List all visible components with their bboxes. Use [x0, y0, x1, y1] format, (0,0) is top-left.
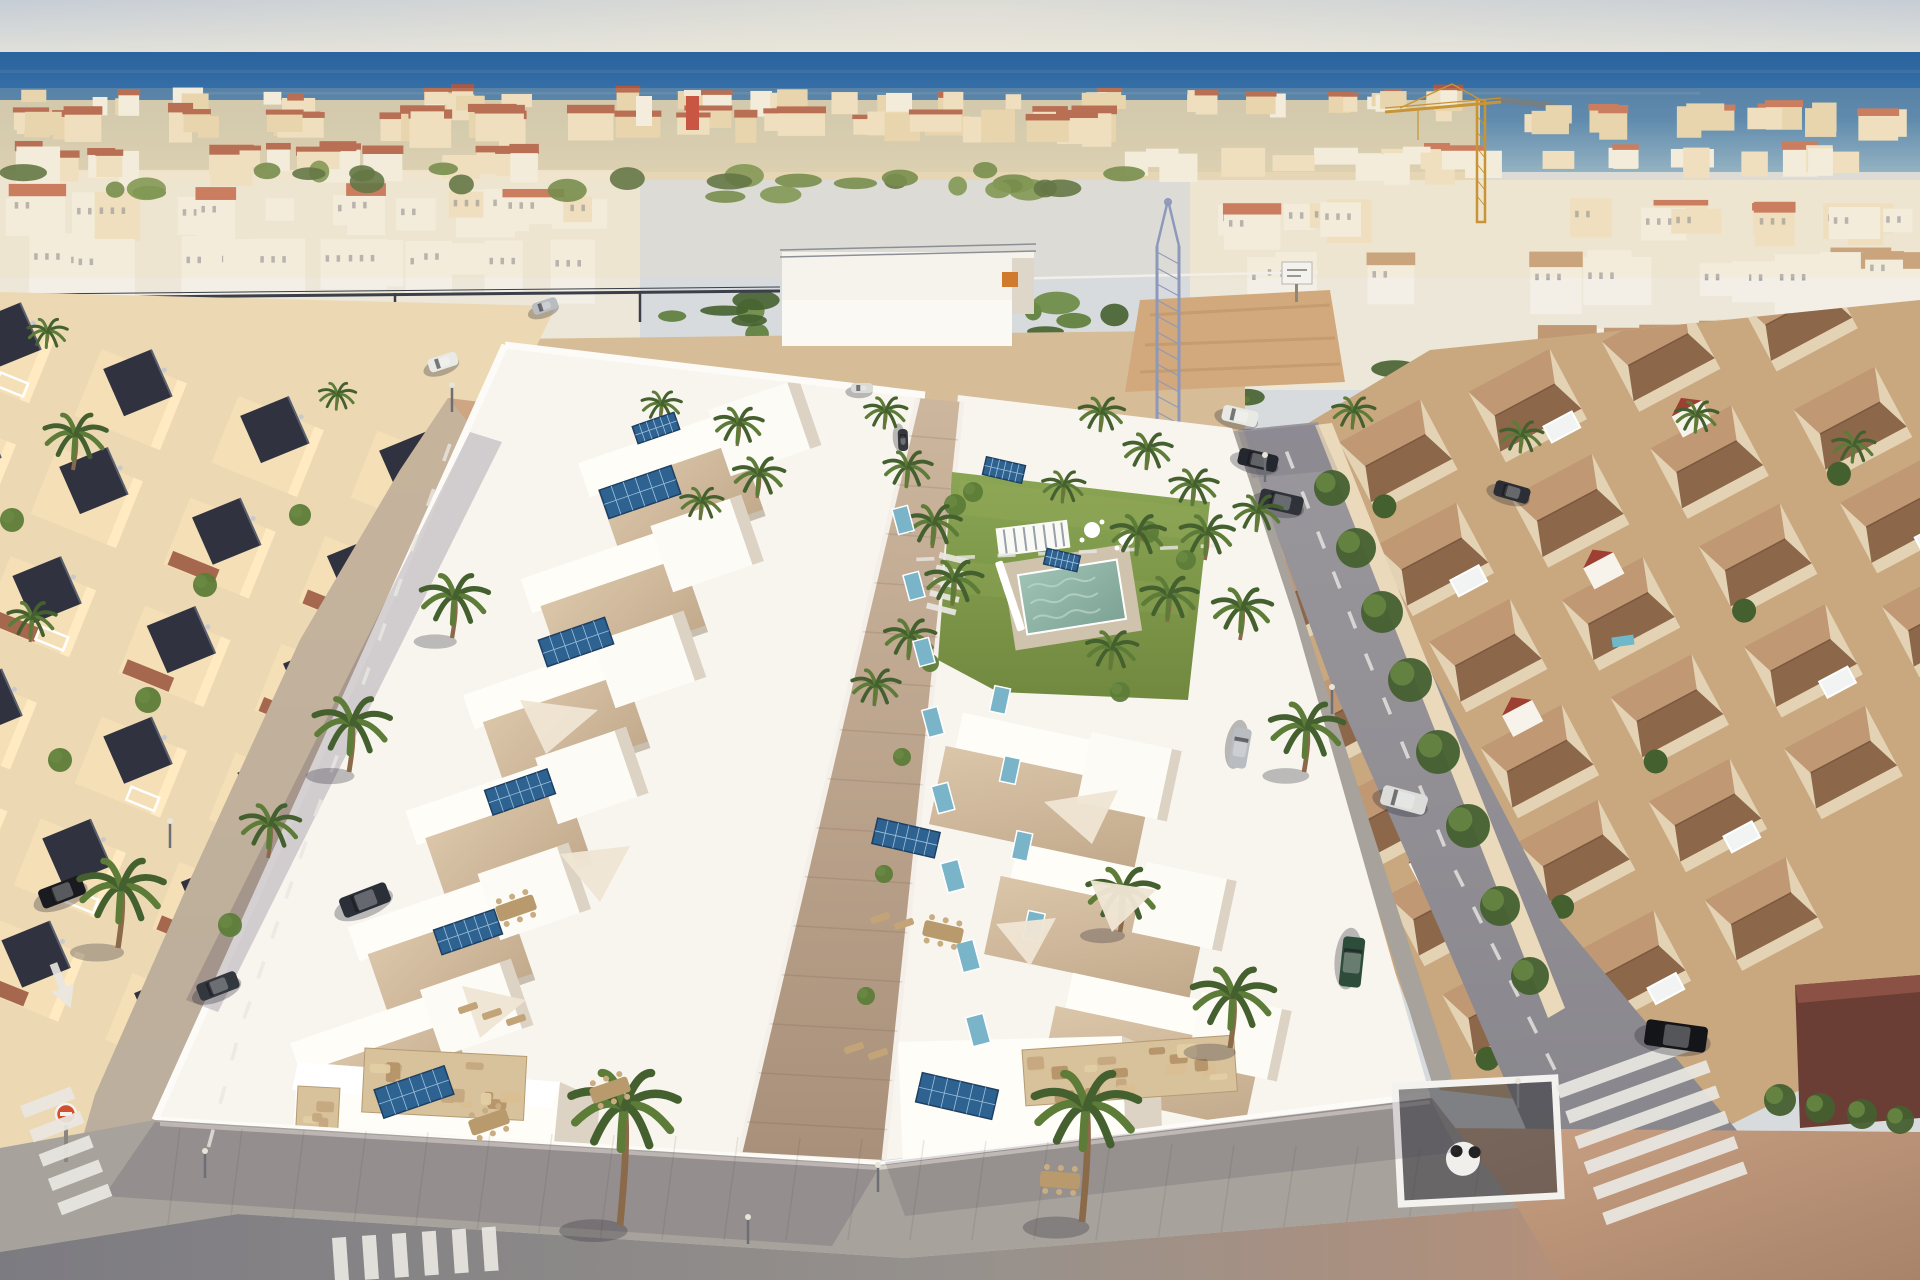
- tree-highlight: [1482, 889, 1504, 911]
- tree-highlight: [1177, 552, 1188, 563]
- orange-cabin: [1002, 272, 1018, 287]
- tree-highlight: [1513, 960, 1534, 981]
- tree-highlight: [1, 510, 14, 523]
- stone: [312, 1113, 323, 1122]
- tree-highlight: [1390, 661, 1414, 685]
- windshield: [856, 385, 860, 391]
- palm-frond: [1062, 485, 1064, 502]
- palm-frond: [621, 1107, 625, 1149]
- palm-frond: [73, 435, 75, 459]
- tree-highlight: [876, 866, 886, 876]
- greenery: [1100, 304, 1128, 327]
- lamp-head: [202, 1148, 208, 1154]
- lamp-head: [875, 1162, 881, 1168]
- lamp-head: [167, 818, 173, 824]
- tree-highlight: [1849, 1101, 1866, 1118]
- table-top: [1039, 1171, 1080, 1190]
- car-roof: [1342, 951, 1361, 974]
- stone: [370, 1063, 391, 1073]
- palm-frond: [1695, 415, 1697, 432]
- stone: [1165, 1063, 1186, 1076]
- greenery: [1033, 292, 1080, 315]
- palm-frond: [700, 502, 702, 519]
- tree-highlight: [1448, 807, 1472, 831]
- car-roof: [1662, 1024, 1691, 1048]
- stone: [1084, 1065, 1097, 1073]
- windshield: [900, 434, 906, 438]
- palm-frond: [46, 332, 47, 347]
- tree-highlight: [1418, 733, 1442, 757]
- lamp-head: [1329, 684, 1335, 690]
- tree-highlight: [858, 988, 868, 998]
- tree-highlight: [49, 750, 62, 763]
- palm-frond: [1305, 728, 1308, 757]
- greenery: [658, 310, 686, 321]
- stone: [316, 1101, 334, 1112]
- palm-frond: [119, 888, 122, 921]
- palm-frond: [908, 637, 910, 657]
- lamp-head: [1262, 452, 1268, 458]
- palm-frond: [1083, 1107, 1087, 1148]
- palm-frond: [1205, 533, 1207, 554]
- palm-frond: [757, 475, 759, 495]
- tree-highlight: [894, 749, 904, 759]
- stone-wall: [296, 1086, 340, 1131]
- tree-highlight: [1316, 473, 1336, 493]
- palm-frond: [268, 824, 270, 847]
- tree-highlight: [1807, 1095, 1824, 1112]
- tree-highlight: [1111, 684, 1122, 695]
- communal-garden: [938, 472, 1210, 700]
- palm-frond: [350, 723, 353, 753]
- tree-highlight: [1766, 1086, 1784, 1104]
- stone: [465, 1062, 483, 1070]
- greenery: [1056, 313, 1091, 329]
- aerial-render: Aerial drone render of a new beachfront …: [0, 0, 1920, 1280]
- greenery: [700, 305, 748, 315]
- stone: [1027, 1056, 1045, 1070]
- tree-highlight: [1338, 531, 1360, 553]
- stone: [481, 1093, 492, 1106]
- palm-frond: [1240, 608, 1242, 631]
- lamp-head: [1515, 1078, 1521, 1084]
- palm-frond: [452, 597, 454, 623]
- palm-frond: [952, 580, 954, 602]
- tree-highlight: [290, 506, 302, 518]
- tree-highlight: [1887, 1108, 1902, 1123]
- tree-highlight: [964, 484, 975, 495]
- palm-frond: [1231, 996, 1234, 1028]
- palm-frond: [1110, 648, 1112, 668]
- palm-frond: [1520, 435, 1522, 452]
- dining-table: [1039, 1164, 1081, 1197]
- palm-frond: [1167, 596, 1169, 618]
- lamp-head: [449, 382, 455, 388]
- palm-frond: [874, 686, 876, 705]
- stone: [500, 1091, 521, 1104]
- tree-highlight: [219, 915, 232, 928]
- tree-highlight: [136, 689, 150, 703]
- palm-frond: [1100, 413, 1102, 431]
- tree-highlight: [1363, 594, 1386, 617]
- stone: [1209, 1073, 1227, 1080]
- palm-frond: [884, 411, 886, 428]
- stone: [1097, 1056, 1116, 1065]
- palm-frond: [906, 468, 908, 487]
- palm-frond: [1352, 411, 1354, 428]
- palm-frond: [1146, 450, 1148, 469]
- palm-frond: [737, 424, 739, 443]
- tree-highlight: [194, 575, 207, 588]
- palm-frond: [1136, 533, 1138, 554]
- greenery: [731, 314, 767, 326]
- stone: [1149, 1047, 1166, 1055]
- palm-frond: [1192, 486, 1194, 505]
- scene-svg: [0, 0, 1920, 1280]
- palm-frond: [30, 618, 32, 637]
- lamp-head: [745, 1214, 751, 1220]
- palm-frond: [336, 395, 337, 409]
- palm-frond: [1256, 512, 1258, 531]
- palm-frond: [1852, 445, 1854, 462]
- palm-frond: [932, 523, 934, 544]
